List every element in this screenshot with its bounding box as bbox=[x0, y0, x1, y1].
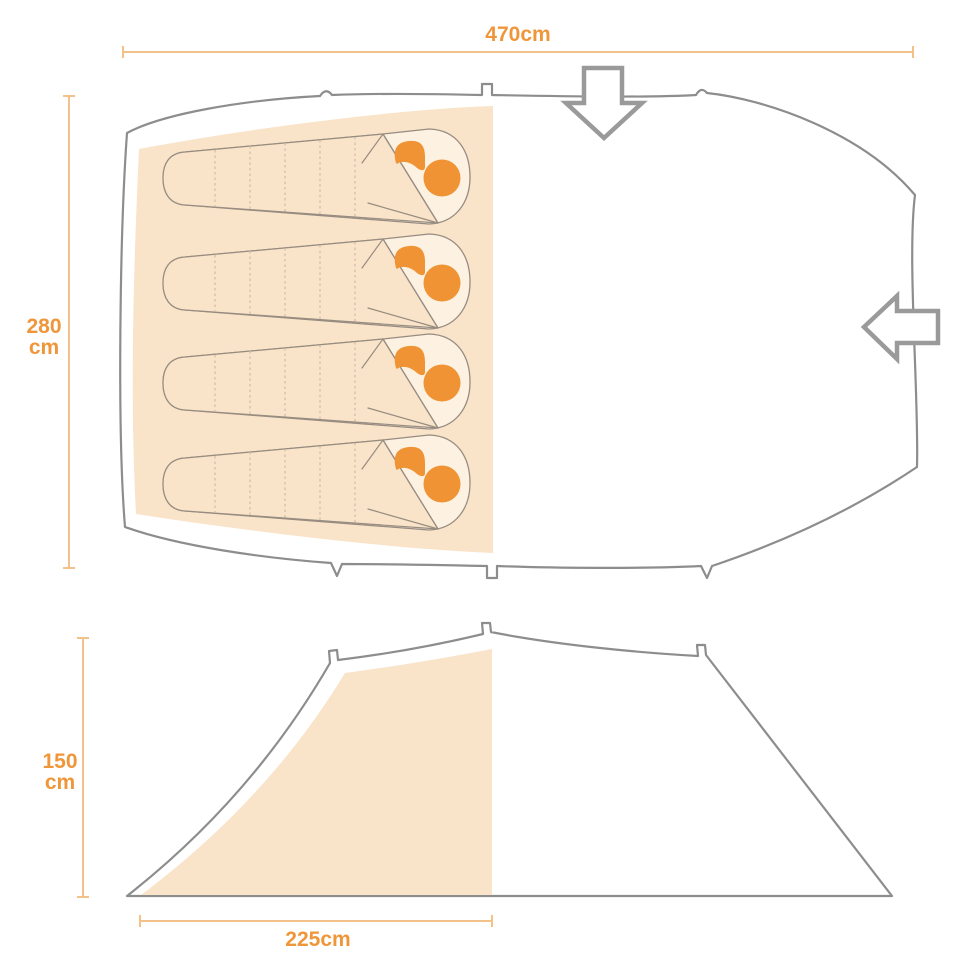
width-dimension-label: 470cm bbox=[485, 23, 550, 46]
dimension-width: 470cm bbox=[123, 23, 913, 58]
dimension-height: 150 cm bbox=[42, 638, 89, 897]
height-dimension-label-unit: cm bbox=[45, 771, 75, 794]
bedroom-width-dimension-label: 225cm bbox=[285, 928, 350, 951]
dimension-line bbox=[63, 96, 75, 568]
tent-dimensions-diagram: 470cm 280 cm 150 cm bbox=[0, 0, 968, 968]
depth-dimension-label-unit: cm bbox=[29, 336, 59, 359]
depth-dimension-label-value: 280 bbox=[26, 315, 61, 338]
tent-top-view: 470cm 280 cm bbox=[26, 23, 938, 578]
dimension-line bbox=[140, 915, 492, 927]
dimension-depth: 280 cm bbox=[26, 96, 75, 568]
dimension-bedroom-width: 225cm bbox=[140, 915, 492, 951]
dimension-line bbox=[123, 46, 913, 58]
height-dimension-label-value: 150 bbox=[42, 750, 77, 773]
tent-side-view: 150 cm 225cm bbox=[42, 623, 892, 951]
dimension-line bbox=[77, 638, 89, 897]
